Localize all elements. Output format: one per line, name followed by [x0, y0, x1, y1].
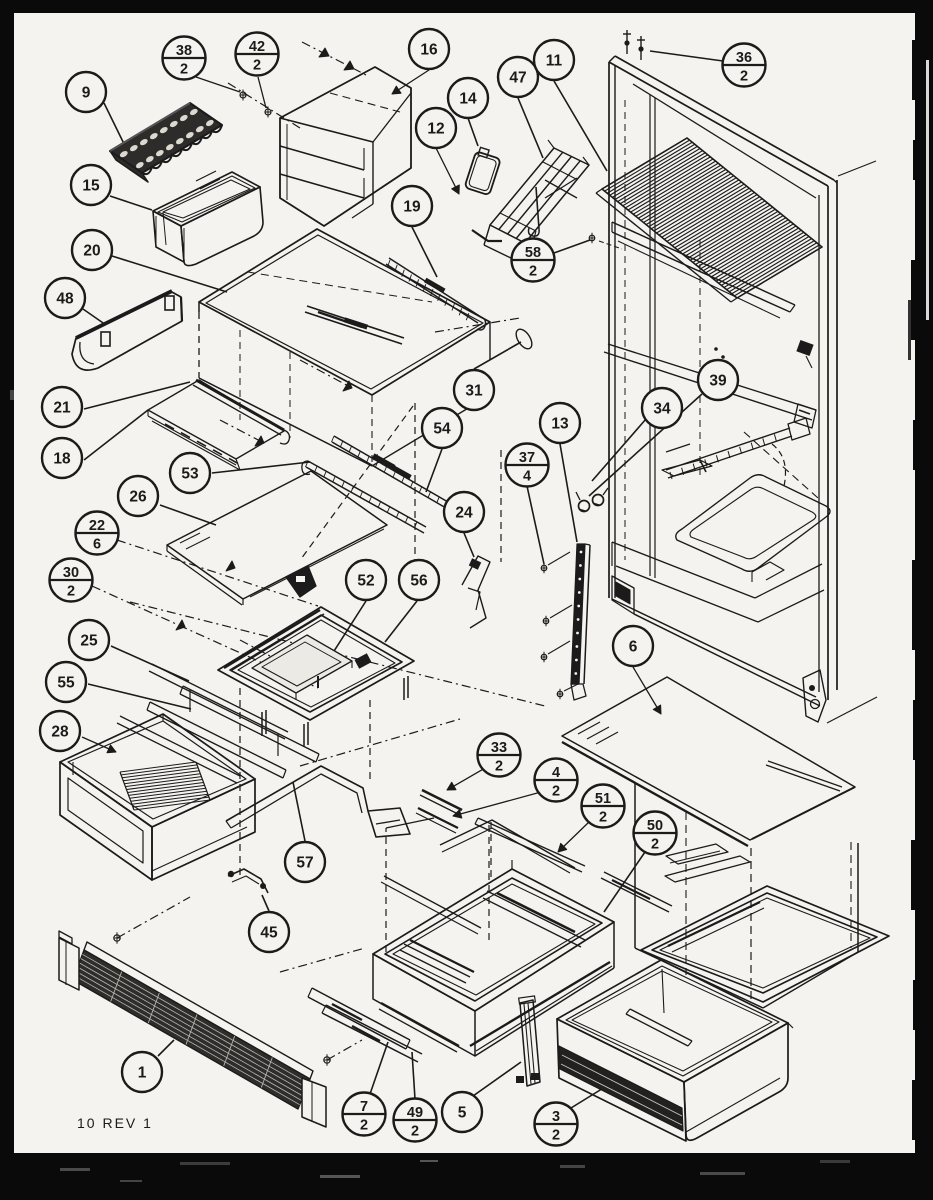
- svg-text:53: 53: [181, 466, 199, 483]
- svg-text:2: 2: [529, 264, 537, 280]
- svg-text:18: 18: [53, 451, 71, 468]
- svg-text:2: 2: [552, 1128, 560, 1144]
- svg-text:6: 6: [93, 537, 101, 553]
- svg-text:25: 25: [80, 633, 98, 650]
- svg-text:2: 2: [651, 837, 659, 853]
- svg-text:55: 55: [57, 675, 75, 692]
- svg-text:52: 52: [357, 573, 374, 590]
- svg-text:37: 37: [519, 450, 535, 466]
- svg-text:34: 34: [653, 401, 671, 418]
- svg-text:4: 4: [523, 469, 531, 485]
- svg-text:2: 2: [599, 810, 607, 826]
- svg-text:22: 22: [89, 518, 105, 534]
- svg-text:24: 24: [455, 505, 473, 522]
- svg-text:28: 28: [51, 724, 69, 741]
- svg-text:39: 39: [709, 373, 727, 390]
- svg-text:42: 42: [249, 39, 265, 55]
- svg-text:21: 21: [53, 400, 71, 417]
- svg-text:20: 20: [83, 243, 100, 260]
- svg-text:2: 2: [740, 69, 748, 85]
- svg-text:49: 49: [407, 1105, 423, 1121]
- svg-text:13: 13: [551, 416, 569, 433]
- svg-text:4: 4: [552, 765, 560, 781]
- svg-text:33: 33: [491, 740, 507, 756]
- svg-text:14: 14: [459, 91, 477, 108]
- svg-text:30: 30: [63, 565, 79, 581]
- svg-text:54: 54: [433, 421, 451, 438]
- svg-text:2: 2: [180, 62, 188, 78]
- svg-text:51: 51: [595, 791, 611, 807]
- svg-text:2: 2: [253, 58, 261, 74]
- svg-text:10 REV 1: 10 REV 1: [77, 1115, 153, 1131]
- svg-text:16: 16: [420, 42, 438, 59]
- svg-text:57: 57: [296, 855, 313, 872]
- svg-text:48: 48: [56, 291, 74, 308]
- svg-text:56: 56: [410, 573, 428, 590]
- svg-text:2: 2: [495, 759, 503, 775]
- svg-text:9: 9: [82, 85, 91, 102]
- svg-text:58: 58: [525, 245, 541, 261]
- svg-text:19: 19: [403, 199, 421, 216]
- svg-text:6: 6: [629, 639, 638, 656]
- svg-text:2: 2: [411, 1124, 419, 1140]
- svg-text:50: 50: [647, 818, 663, 834]
- svg-text:36: 36: [736, 50, 752, 66]
- svg-text:47: 47: [509, 70, 526, 87]
- svg-text:2: 2: [360, 1118, 368, 1134]
- svg-text:3: 3: [552, 1109, 560, 1125]
- svg-text:38: 38: [176, 43, 192, 59]
- svg-text:15: 15: [82, 178, 100, 195]
- svg-text:7: 7: [360, 1099, 368, 1115]
- svg-text:11: 11: [546, 53, 563, 70]
- svg-text:1: 1: [138, 1065, 147, 1082]
- svg-text:45: 45: [260, 925, 278, 942]
- svg-text:12: 12: [427, 121, 444, 138]
- svg-text:5: 5: [458, 1105, 467, 1122]
- svg-text:2: 2: [67, 584, 75, 600]
- svg-text:31: 31: [465, 383, 483, 400]
- svg-text:26: 26: [129, 489, 147, 506]
- svg-text:2: 2: [552, 784, 560, 800]
